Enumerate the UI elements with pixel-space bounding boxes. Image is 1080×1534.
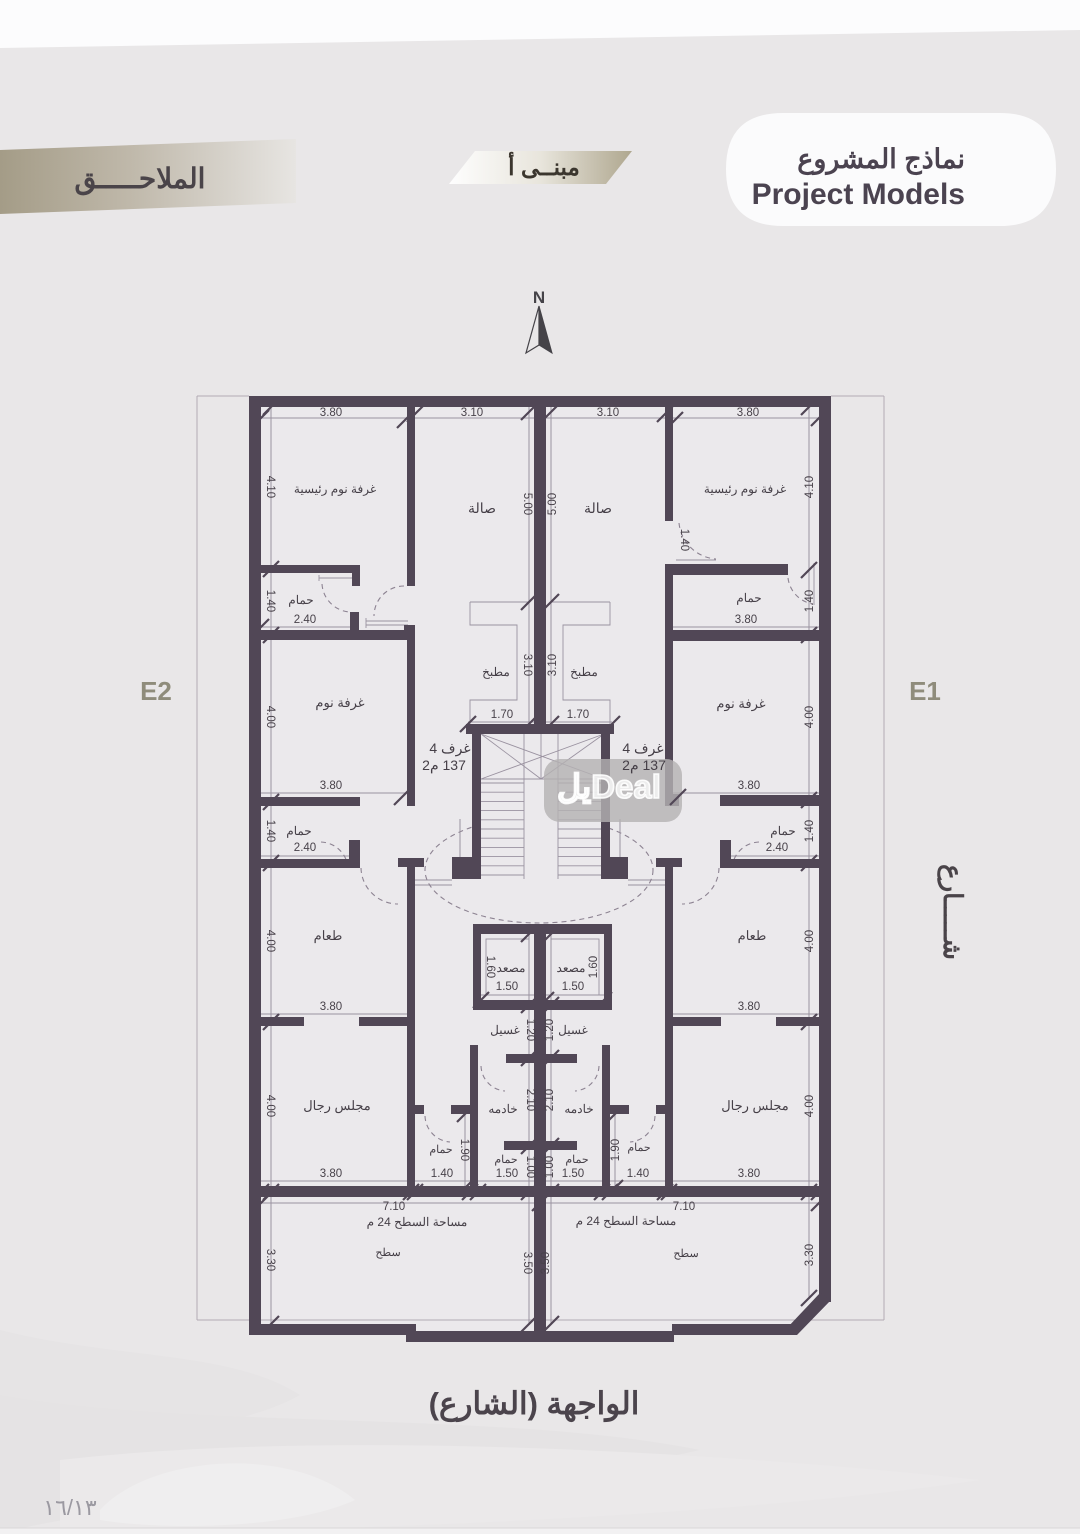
svg-text:2.10: 2.10 — [524, 1089, 536, 1111]
svg-text:1.50: 1.50 — [562, 981, 584, 993]
svg-text:غرفة نوم رئيسية: غرفة نوم رئيسية — [704, 482, 786, 496]
svg-text:غرف 4: غرف 4 — [429, 740, 470, 757]
svg-text:1.20: 1.20 — [524, 1019, 536, 1041]
svg-text:2.40: 2.40 — [766, 842, 788, 854]
svg-text:4.00: 4.00 — [264, 1095, 276, 1117]
svg-text:3.10: 3.10 — [521, 654, 533, 676]
svg-text:صالة: صالة — [584, 500, 612, 516]
svg-text:غسيل: غسيل — [558, 1023, 588, 1037]
svg-text:1.50: 1.50 — [496, 981, 518, 993]
svg-text:غرفة نوم: غرفة نوم — [315, 695, 364, 711]
svg-text:خادمه: خادمه — [488, 1102, 517, 1116]
svg-text:١٦/١٣: ١٦/١٣ — [43, 1495, 97, 1520]
svg-text:137 م2: 137 م2 — [622, 757, 666, 774]
svg-text:1.60: 1.60 — [484, 956, 496, 978]
svg-text:3.80: 3.80 — [737, 407, 759, 419]
svg-text:خادمه: خادمه — [564, 1102, 593, 1116]
svg-text:1.00: 1.00 — [524, 1156, 536, 1178]
svg-text:1.70: 1.70 — [491, 709, 513, 721]
svg-text:5.00: 5.00 — [547, 493, 559, 515]
svg-text:نماذج المشروع: نماذج المشروع — [797, 144, 965, 176]
svg-text:حمام: حمام — [627, 1142, 650, 1154]
svg-text:4.00: 4.00 — [804, 1095, 816, 1117]
svg-text:3.80: 3.80 — [320, 1168, 342, 1180]
svg-text:3.10: 3.10 — [461, 407, 483, 419]
svg-text:4.00: 4.00 — [264, 930, 276, 952]
svg-text:3.80: 3.80 — [320, 1001, 342, 1013]
svg-text:2.40: 2.40 — [294, 614, 316, 626]
svg-text:3.80: 3.80 — [738, 1001, 760, 1013]
svg-text:الملاحـــــق: الملاحـــــق — [75, 163, 206, 196]
svg-text:3.80: 3.80 — [320, 407, 342, 419]
svg-text:غسيل: غسيل — [490, 1023, 520, 1037]
svg-text:حمام: حمام — [736, 591, 761, 605]
svg-text:1.90: 1.90 — [610, 1139, 622, 1161]
svg-text:صالة: صالة — [468, 500, 496, 516]
svg-text:1.40: 1.40 — [804, 590, 816, 612]
svg-text:1.50: 1.50 — [562, 1168, 584, 1180]
svg-text:137 م2: 137 م2 — [422, 757, 466, 774]
svg-text:4.00: 4.00 — [804, 930, 816, 952]
svg-text:طعام: طعام — [738, 928, 767, 944]
svg-text:1.20: 1.20 — [544, 1019, 556, 1041]
svg-text:1.40: 1.40 — [804, 820, 816, 842]
svg-text:2.40: 2.40 — [294, 842, 316, 854]
svg-text:3.50: 3.50 — [521, 1252, 533, 1274]
svg-text:سطح: سطح — [673, 1248, 698, 1260]
svg-text:الواجهة (الشارع): الواجهة (الشارع) — [429, 1386, 640, 1423]
svg-text:مبنــى أ: مبنــى أ — [508, 151, 580, 180]
svg-text:حمام: حمام — [288, 593, 313, 607]
svg-text:4.10: 4.10 — [804, 476, 816, 498]
svg-text:1.70: 1.70 — [567, 709, 589, 721]
svg-text:5.00: 5.00 — [521, 493, 533, 515]
svg-text:1.40: 1.40 — [678, 529, 690, 551]
svg-text:غرفة نوم: غرفة نوم — [716, 696, 765, 712]
svg-text:مساحة السطح 24 م: مساحة السطح 24 م — [576, 1214, 677, 1228]
svg-text:7.10: 7.10 — [673, 1201, 695, 1213]
svg-text:مطبخ: مطبخ — [570, 665, 598, 679]
svg-text:7.10: 7.10 — [383, 1201, 405, 1213]
svg-text:غرفة نوم رئيسية: غرفة نوم رئيسية — [294, 482, 376, 496]
svg-text:1.40: 1.40 — [264, 820, 276, 842]
svg-text:حمام: حمام — [286, 824, 311, 838]
svg-text:4.00: 4.00 — [804, 706, 816, 728]
svg-text:مصعد: مصعد — [497, 961, 526, 975]
svg-text:شـــــارع: شـــــارع — [937, 864, 968, 960]
svg-text:طعام: طعام — [314, 928, 343, 944]
svg-text:يلDeal: يلDeal — [557, 768, 661, 805]
svg-text:حمام: حمام — [565, 1154, 588, 1166]
svg-text:3.30: 3.30 — [264, 1249, 276, 1271]
svg-text:مجلس رجال: مجلس رجال — [721, 1098, 789, 1114]
svg-text:مصعد: مصعد — [557, 961, 586, 975]
svg-text:1.60: 1.60 — [588, 956, 600, 978]
svg-text:3.10: 3.10 — [547, 654, 559, 676]
svg-text:N: N — [533, 288, 545, 307]
svg-text:حمام: حمام — [429, 1144, 452, 1156]
svg-text:غرف 4: غرف 4 — [622, 740, 663, 757]
svg-text:1.00: 1.00 — [544, 1156, 556, 1178]
svg-text:3.50: 3.50 — [540, 1252, 552, 1274]
svg-text:3.80: 3.80 — [738, 780, 760, 792]
svg-text:حمام: حمام — [494, 1154, 517, 1166]
svg-text:2.10: 2.10 — [544, 1089, 556, 1111]
svg-text:مطبخ: مطبخ — [482, 665, 510, 679]
svg-text:3.80: 3.80 — [320, 780, 342, 792]
svg-text:Project Models: Project Models — [752, 178, 965, 211]
svg-text:3.10: 3.10 — [597, 407, 619, 419]
svg-text:1.40: 1.40 — [431, 1168, 453, 1180]
svg-text:1.90: 1.90 — [458, 1139, 470, 1161]
svg-text:E1: E1 — [909, 676, 941, 706]
svg-text:1.40: 1.40 — [264, 590, 276, 612]
svg-text:4.10: 4.10 — [264, 476, 276, 498]
svg-text:E2: E2 — [140, 676, 172, 706]
svg-text:مساحة السطح 24 م: مساحة السطح 24 م — [367, 1215, 468, 1229]
svg-text:3.30: 3.30 — [804, 1244, 816, 1266]
svg-text:مجلس رجال: مجلس رجال — [303, 1098, 371, 1114]
svg-text:سطح: سطح — [375, 1247, 400, 1259]
svg-text:1.40: 1.40 — [627, 1168, 649, 1180]
svg-text:3.80: 3.80 — [738, 1168, 760, 1180]
svg-text:4.00: 4.00 — [264, 706, 276, 728]
svg-text:3.80: 3.80 — [735, 614, 757, 626]
svg-text:1.50: 1.50 — [496, 1168, 518, 1180]
svg-text:حمام: حمام — [770, 824, 795, 838]
